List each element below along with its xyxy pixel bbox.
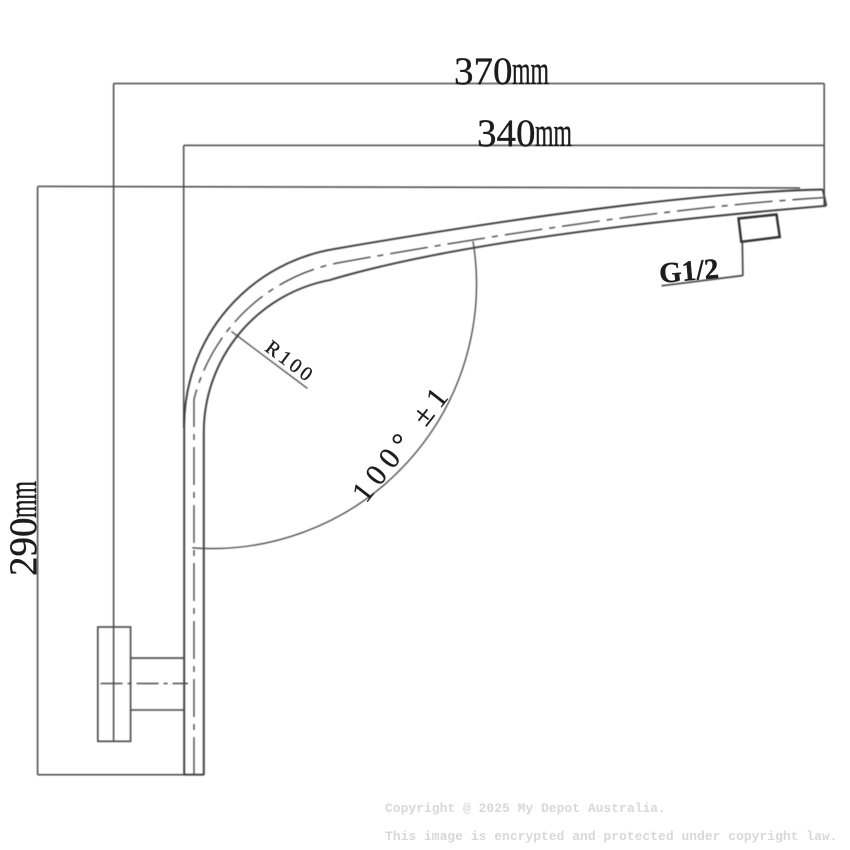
svg-text:Copyright @ 2025 My Depot Aust: Copyright @ 2025 My Depot Australia. <box>385 801 666 816</box>
svg-text:290: 290 <box>2 518 45 577</box>
svg-text:340: 340 <box>477 112 536 155</box>
svg-text:mm: mm <box>1 481 46 518</box>
svg-text:G1/2: G1/2 <box>658 253 720 290</box>
svg-text:mm: mm <box>535 111 572 156</box>
svg-text:100° ±1: 100° ±1 <box>346 377 459 509</box>
svg-text:R100: R100 <box>261 336 319 387</box>
svg-text:mm: mm <box>512 49 549 94</box>
svg-text:370: 370 <box>454 50 513 93</box>
svg-text:This image is encrypted and pr: This image is encrypted and protected un… <box>385 829 837 844</box>
